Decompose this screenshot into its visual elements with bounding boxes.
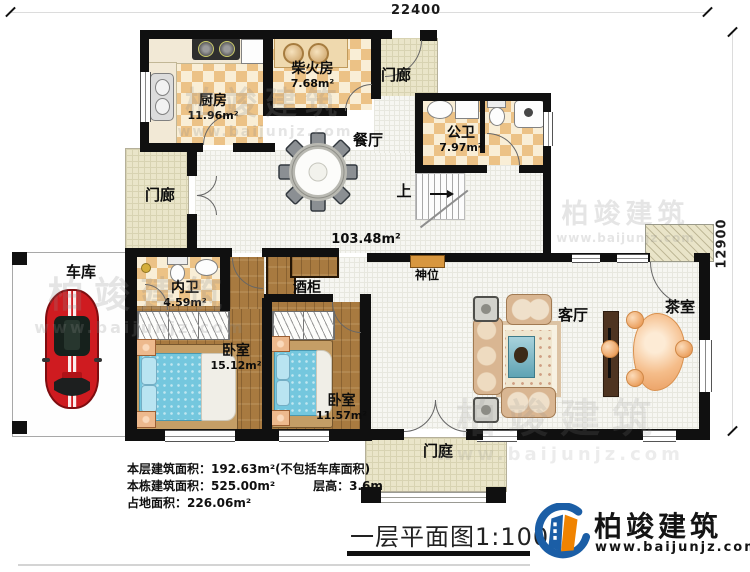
- info-value: 226.06m²: [187, 496, 251, 510]
- wall: [519, 165, 551, 173]
- wine-cabinet-label: 酒柜: [285, 278, 329, 297]
- area-info-line: 本层建筑面积：192.63m²(不包括车库面积): [127, 461, 383, 478]
- nightstand: [271, 336, 290, 352]
- brand-url: www.baijunjz.com: [595, 540, 750, 555]
- nightstand: [136, 411, 156, 428]
- sink-basin: [155, 79, 170, 96]
- bathtub-icon: [514, 100, 545, 128]
- room-label-porch-left: 门廊: [132, 187, 188, 204]
- stairs-up-label: 上: [394, 183, 414, 200]
- foyer-step: [381, 502, 486, 503]
- window: [477, 430, 517, 442]
- room-name: 餐厅: [340, 132, 396, 149]
- room-name: 卧室: [200, 344, 272, 360]
- coffee-table: [508, 336, 535, 378]
- dimension-line-right: [732, 32, 733, 432]
- bed-pillow: [141, 385, 157, 413]
- sink-basin: [155, 98, 170, 115]
- room-name: 门廊: [368, 67, 424, 84]
- loveseat: [501, 387, 556, 418]
- fridge-icon: [241, 39, 265, 64]
- tea-stool: [675, 340, 693, 358]
- bed-pillow: [276, 354, 290, 380]
- foyer-step: [381, 492, 486, 493]
- stairs-arrow-head: [447, 190, 454, 198]
- dimension-right-value: 12900: [715, 214, 730, 274]
- area-info: 本层建筑面积：192.63m²(不包括车库面积) 本栋建筑面积：525.00m²…: [127, 461, 383, 512]
- pillar: [468, 429, 483, 440]
- washbasin-icon: [195, 259, 218, 276]
- window: [617, 254, 648, 263]
- room-label-dining: 餐厅: [340, 132, 396, 149]
- floor-plan-canvas: 22400 12900: [0, 0, 750, 572]
- area-info-line: 占地面积：226.06m²: [127, 495, 383, 512]
- wall: [233, 143, 275, 152]
- wall: [220, 257, 230, 311]
- room-name: 卧室: [304, 394, 379, 410]
- room-label-kitchen: 厨房 11.96m²: [178, 94, 248, 122]
- info-label: 占地面积：: [127, 496, 187, 510]
- room-label-public-bath: 公卫 7.97m²: [426, 126, 496, 154]
- room-area: 15.12m²: [200, 360, 272, 372]
- area-info-line: 本栋建筑面积：525.00m²层高：3.6m: [127, 478, 383, 495]
- room-label-living: 客厅: [545, 307, 601, 324]
- side-table: [473, 397, 499, 423]
- wall: [125, 429, 372, 441]
- window: [543, 112, 553, 146]
- pillar: [383, 429, 398, 440]
- wall: [125, 248, 137, 440]
- stairs-arrow: [430, 193, 448, 195]
- room-name: 门庭: [410, 443, 466, 460]
- wall: [262, 248, 339, 257]
- foyer-step: [381, 497, 486, 498]
- footer-divider: [18, 564, 530, 566]
- room-name: 公卫: [426, 126, 496, 142]
- wardrobe: [137, 311, 230, 340]
- room-label-foyer: 门庭: [410, 443, 466, 460]
- drawing-title: 一层平面图1:100: [350, 517, 549, 552]
- wall: [140, 30, 392, 39]
- room-area: 7.97m²: [426, 142, 496, 154]
- window: [643, 430, 676, 442]
- room-label-bedroom1: 卧室 15.12m²: [200, 344, 272, 372]
- room-label-tea: 茶室: [652, 299, 708, 316]
- room-label-bedroom2: 卧室 11.57m²: [304, 394, 379, 422]
- window: [165, 430, 235, 442]
- window: [140, 72, 151, 122]
- tea-stool: [601, 340, 619, 358]
- room-area: 103.48m²: [331, 232, 400, 247]
- wall: [125, 248, 232, 257]
- wall: [415, 165, 487, 173]
- room-label-firewood: 柴火房 7.68m²: [270, 62, 355, 90]
- car-icon: [40, 286, 104, 412]
- shrine-label: 神位: [409, 265, 445, 283]
- room-name: 酒柜: [293, 280, 321, 296]
- info-label: 层高：: [313, 479, 349, 493]
- room-name: 神位: [415, 268, 439, 282]
- bed-pillow: [141, 357, 157, 385]
- bath-cabinet-icon: [455, 99, 479, 119]
- room-name: 车库: [53, 264, 109, 281]
- wall: [415, 101, 423, 173]
- room-name: 柴火房: [270, 62, 355, 78]
- pillar: [12, 421, 27, 434]
- stove-icon: [192, 37, 240, 60]
- toilet-icon: [489, 107, 505, 126]
- hall-area-label: 103.48m²: [328, 229, 404, 248]
- room-area: 4.59m²: [150, 297, 220, 309]
- room-area: 11.57m²: [304, 410, 379, 422]
- brand-name: 柏竣建筑: [594, 505, 722, 545]
- wall: [694, 253, 710, 262]
- bed-pillow: [276, 380, 290, 406]
- table-plant-icon: [514, 347, 528, 363]
- nightstand: [136, 339, 156, 356]
- wall: [415, 93, 551, 101]
- washbasin-icon: [427, 100, 453, 119]
- pillar: [12, 252, 27, 265]
- info-value: 192.63m²(不包括车库面积): [211, 462, 370, 476]
- side-table: [473, 296, 499, 322]
- wall: [263, 108, 347, 116]
- info-value: 3.6m: [349, 479, 383, 493]
- window: [572, 254, 600, 263]
- room-label-ensuite-bath: 内卫 4.59m²: [150, 281, 220, 309]
- room-label-garage: 车库: [53, 264, 109, 281]
- room-name: 客厅: [545, 307, 601, 324]
- dimension-top-value: 22400: [391, 3, 441, 18]
- room-name: 茶室: [652, 299, 708, 316]
- info-value: 525.00m²: [211, 479, 275, 493]
- stove-burner-icon: [198, 41, 214, 57]
- pillar: [486, 487, 506, 503]
- window: [699, 340, 712, 392]
- wall: [187, 148, 197, 176]
- window: [279, 430, 329, 442]
- kitchen-sink-icon: [150, 73, 174, 121]
- pillar: [420, 30, 437, 41]
- sofa-long: [473, 317, 503, 395]
- nightstand: [271, 410, 290, 426]
- info-label: 本层建筑面积：: [127, 462, 211, 476]
- room-name: 内卫: [150, 281, 220, 297]
- tea-stool: [626, 369, 644, 387]
- drain-icon: [524, 108, 533, 117]
- room-area: 11.96m²: [178, 110, 248, 122]
- faucet-knob-icon: [141, 263, 151, 273]
- stove-burner-icon: [219, 41, 235, 57]
- room-name: 门廊: [132, 187, 188, 204]
- brand-logo-icon: [534, 503, 592, 565]
- dimension-line-top: [10, 12, 708, 13]
- room-name: 厨房: [178, 94, 248, 110]
- info-label: 本栋建筑面积：: [127, 479, 211, 493]
- tea-stool: [626, 311, 644, 329]
- room-area: 7.68m²: [270, 78, 355, 90]
- room-label-porch-top: 门廊: [368, 67, 424, 84]
- room-name: 上: [394, 183, 414, 200]
- title-underline: [347, 551, 530, 556]
